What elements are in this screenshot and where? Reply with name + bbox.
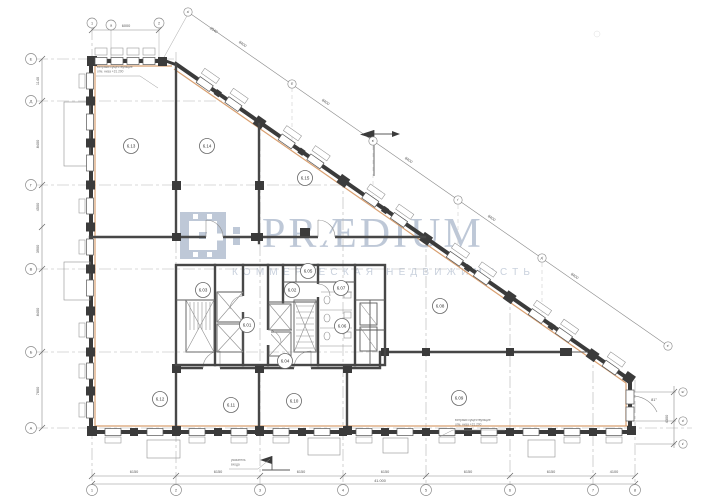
pilaster [506, 428, 514, 436]
annotation-leader [140, 76, 158, 88]
pilaster [130, 428, 138, 436]
axis-bubble-label: 2 [158, 21, 160, 25]
window [95, 58, 107, 65]
room-bubble-label: 6.09 [455, 396, 464, 401]
dimension-label: 6150 [130, 470, 138, 474]
room-bubble-label: 6.01 [243, 323, 252, 328]
window [523, 429, 539, 436]
pilaster [86, 223, 95, 232]
pilaster [86, 97, 95, 106]
window-sill [564, 437, 580, 443]
dimension-label: 6150 [381, 470, 389, 474]
dimension-label: 4300 [665, 415, 669, 423]
window-sill [79, 403, 85, 417]
room-bubble-label: 6.06 [338, 324, 347, 329]
core-block [176, 265, 385, 365]
dimension-label: 8400 [36, 308, 40, 316]
window [147, 429, 163, 436]
dimension-label: 81° [651, 398, 657, 402]
floor-plan-page: PRÆDIUM КОММЕРЧЕСКАЯ НЕДВИЖИМОСТЬ [0, 0, 712, 498]
axis-bubble-label: д' [541, 256, 544, 260]
window-sill [79, 364, 85, 378]
window [111, 58, 123, 65]
window-sill [439, 437, 455, 443]
dimension-label: 2540 [209, 26, 218, 34]
window [314, 429, 330, 436]
pilaster [298, 428, 306, 436]
window [87, 73, 94, 89]
axis-bubble-label: б' [291, 82, 294, 86]
room-bubble-label: 6.13 [127, 144, 136, 149]
window [87, 239, 94, 255]
window [143, 58, 155, 65]
dimension-label: 6000 [122, 24, 130, 28]
window [273, 429, 289, 436]
window [397, 429, 413, 436]
pilaster [214, 428, 222, 436]
axis-bubble-label: А [30, 425, 33, 430]
window [87, 155, 94, 171]
pilaster [86, 348, 95, 357]
window-sill [606, 437, 622, 443]
room-bubble-label: 6.12 [156, 397, 165, 402]
dimension-label: 8400 [36, 140, 40, 148]
window [87, 280, 94, 296]
room-bubble-label: 6.08 [436, 304, 445, 309]
window-sill [273, 437, 289, 443]
floor-plan-drawing: PRÆDIUM КОММЕРЧЕСКАЯ НЕДВИЖИМОСТЬ [0, 0, 712, 498]
dimension-label: 41.000 [374, 479, 386, 483]
stair-2 [294, 300, 316, 352]
window-sill [95, 48, 107, 55]
room-bubble-label: 6.05 [304, 269, 313, 274]
window [356, 429, 372, 436]
pilaster [464, 428, 472, 436]
annotation-text: витражи существующиеотм. низа +31.200 [97, 65, 133, 73]
window [439, 429, 455, 436]
axis-bubble-label: е' [667, 344, 670, 348]
window-sill [231, 437, 247, 443]
room-bubble-label: 6.15 [301, 176, 310, 181]
room-bubble-label: 6.04 [281, 359, 290, 364]
window [87, 363, 94, 379]
watermark-brand: PRÆDIUM [262, 211, 484, 257]
window-sill [481, 437, 497, 443]
dimension-label: 6150 [464, 470, 472, 474]
window-sill [111, 48, 123, 55]
pilaster [86, 181, 95, 190]
faint-axis-mark [594, 31, 600, 37]
facade-bay [147, 440, 180, 458]
facade-bay [528, 440, 555, 457]
window-sill [105, 437, 121, 443]
window-sill [79, 199, 85, 213]
axis-bubble-label: 1 [91, 21, 93, 25]
window [626, 407, 634, 421]
dimension-label: 4500 [36, 203, 40, 211]
dimension-label: 6150 [214, 470, 222, 474]
pilaster [589, 428, 597, 436]
pilaster [422, 428, 430, 436]
section-flag [360, 130, 400, 176]
axis-bubble-label: ж' [682, 390, 685, 394]
window [231, 429, 247, 436]
window [87, 402, 94, 418]
facade-bay [308, 438, 340, 455]
room-bubble-label: 6.07 [337, 286, 346, 291]
annotation-text: витражи существующиеотм. низа +31.200 [455, 418, 491, 426]
wc-stalls [320, 292, 352, 346]
room-bubble-label: 6.11 [227, 403, 236, 408]
pilaster [548, 428, 556, 436]
axis-bubble-label: Д [30, 98, 33, 103]
window-sill [189, 437, 205, 443]
window [626, 390, 634, 404]
axis-bubble-label: к' [682, 442, 684, 446]
window-sill [356, 437, 372, 443]
pilaster [86, 387, 95, 396]
room-bubble-label: 6.02 [288, 288, 297, 293]
window [189, 429, 205, 436]
section-flag [260, 456, 290, 470]
facade-bay [64, 102, 90, 166]
dimension-label: 6150 [547, 470, 555, 474]
window-sill [79, 323, 85, 337]
dimension-label: 6150 [297, 470, 305, 474]
room-bubble-label: 6.10 [290, 399, 299, 404]
axis-bubble-label: Б [30, 349, 33, 354]
window-sill [127, 48, 139, 55]
window-sill [143, 48, 155, 55]
window-sill [79, 74, 85, 88]
annotation-text: указательвхода [231, 458, 246, 466]
dimension-ticks [39, 27, 677, 487]
window [481, 429, 497, 436]
window-sill [79, 240, 85, 254]
pilaster [86, 265, 95, 274]
axis-bubble-label: а' [187, 10, 190, 14]
window [606, 429, 622, 436]
window [127, 58, 139, 65]
window [87, 198, 94, 214]
window [105, 429, 121, 436]
dimension-label: 8400 [321, 98, 330, 106]
facade-bay [383, 438, 408, 453]
pilaster [86, 307, 95, 316]
room-bubble-label: 6.03 [199, 288, 208, 293]
room-bubble-label: 6.14 [203, 144, 212, 149]
dimension-label: 3900 [36, 245, 40, 253]
dimension-label: 8400 [238, 40, 247, 48]
pilaster [86, 139, 95, 148]
window [564, 429, 580, 436]
window [87, 114, 94, 130]
axis-bubble-label: и' [682, 419, 685, 423]
dimension-label: 1140 [36, 77, 40, 85]
axis-bubble-label: Е [30, 56, 33, 61]
window [87, 322, 94, 338]
dimension-label: 4100 [610, 470, 618, 474]
pilaster [381, 428, 389, 436]
axis-bubble-label: В [30, 266, 33, 271]
axis-bubble-label: в' [372, 139, 375, 143]
stair-1 [186, 300, 214, 352]
dimension-label: 7600 [36, 387, 40, 395]
